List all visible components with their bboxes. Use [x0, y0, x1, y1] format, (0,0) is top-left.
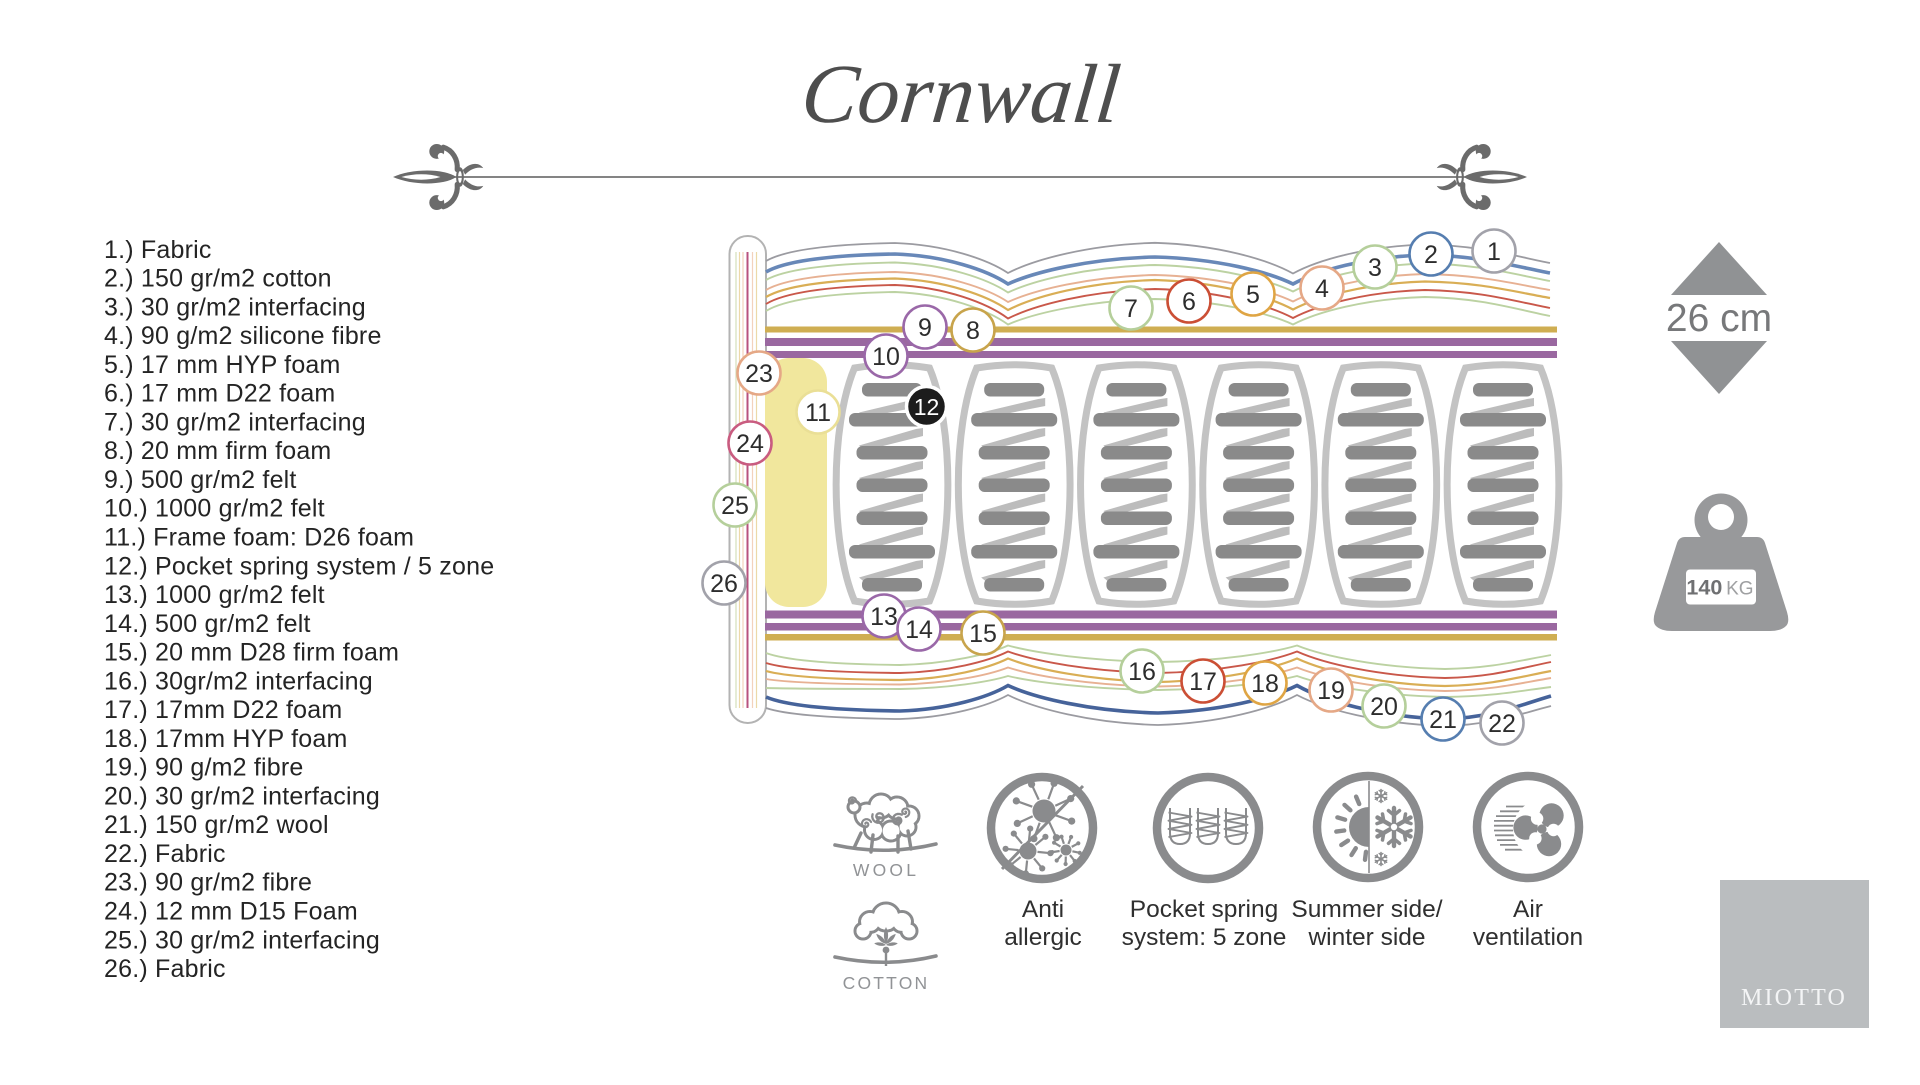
svg-text:7: 7 [1124, 295, 1138, 323]
svg-text:9: 9 [918, 314, 932, 342]
svg-text:1.) Fabric: 1.) Fabric [104, 236, 212, 264]
svg-text:20.) 30 gr/m2 interfacing: 20.) 30 gr/m2 interfacing [104, 782, 380, 810]
svg-text:Anti: Anti [1022, 896, 1064, 923]
svg-text:8.) 20 mm firm foam: 8.) 20 mm firm foam [104, 437, 331, 465]
svg-text:22.) Fabric: 22.) Fabric [104, 840, 226, 868]
svg-text:13: 13 [870, 603, 898, 631]
svg-text:24.) 12 mm D15 Foam: 24.) 12 mm D15 Foam [104, 898, 358, 926]
svg-text:3: 3 [1368, 254, 1382, 282]
svg-text:6: 6 [1182, 288, 1196, 316]
svg-text:22: 22 [1488, 710, 1516, 738]
svg-text:19: 19 [1317, 677, 1345, 705]
svg-text:5.) 17 mm HYP foam: 5.) 17 mm HYP foam [104, 351, 341, 379]
svg-text:17.) 17mm D22 foam: 17.) 17mm D22 foam [104, 696, 342, 724]
svg-text:18.) 17mm HYP foam: 18.) 17mm HYP foam [104, 725, 348, 753]
svg-text:COTTON: COTTON [843, 973, 930, 993]
svg-text:6.) 17 mm D22 foam: 6.) 17 mm D22 foam [104, 380, 335, 408]
svg-text:Pocket spring: Pocket spring [1130, 896, 1278, 923]
svg-text:140 KG: 140 KG [1686, 576, 1753, 600]
svg-text:Air: Air [1513, 896, 1543, 923]
svg-text:1: 1 [1487, 238, 1501, 266]
svg-text:system: 5 zone: system: 5 zone [1122, 924, 1287, 951]
svg-text:10.) 1000 gr/m2 felt: 10.) 1000 gr/m2 felt [104, 495, 325, 523]
svg-text:14.) 500 gr/m2 felt: 14.) 500 gr/m2 felt [104, 610, 311, 638]
svg-text:25: 25 [721, 492, 749, 520]
svg-text:25.) 30 gr/m2 interfacing: 25.) 30 gr/m2 interfacing [104, 926, 380, 954]
svg-text:Summer side/: Summer side/ [1291, 896, 1442, 923]
svg-text:12: 12 [914, 394, 940, 420]
svg-text:7.) 30 gr/m2 interfacing: 7.) 30 gr/m2 interfacing [104, 408, 366, 436]
svg-text:3.) 30 gr/m2 interfacing: 3.) 30 gr/m2 interfacing [104, 293, 366, 321]
svg-text:24: 24 [736, 430, 764, 458]
svg-text:23: 23 [745, 360, 773, 388]
svg-text:10: 10 [872, 343, 900, 371]
svg-text:21.) 150 gr/m2 wool: 21.) 150 gr/m2 wool [104, 811, 329, 839]
svg-text:26: 26 [710, 570, 738, 598]
svg-text:16.) 30gr/m2 interfacing: 16.) 30gr/m2 interfacing [104, 667, 373, 695]
svg-text:26 cm: 26 cm [1666, 297, 1772, 340]
svg-text:26.) Fabric: 26.) Fabric [104, 955, 226, 983]
svg-text:17: 17 [1189, 668, 1217, 696]
svg-text:18: 18 [1251, 670, 1279, 698]
svg-text:5: 5 [1246, 281, 1260, 309]
svg-text:9.) 500 gr/m2 felt: 9.) 500 gr/m2 felt [104, 466, 297, 494]
svg-text:19.) 90 g/m2 fibre: 19.) 90 g/m2 fibre [104, 754, 304, 782]
svg-text:20: 20 [1370, 693, 1398, 721]
svg-text:11.) Frame foam: D26 foam: 11.) Frame foam: D26 foam [104, 524, 414, 552]
svg-text:15: 15 [969, 620, 997, 648]
svg-text:Cornwall: Cornwall [797, 48, 1124, 141]
svg-text:4: 4 [1315, 275, 1329, 303]
svg-text:23.) 90 gr/m2 fibre: 23.) 90 gr/m2 fibre [104, 869, 312, 897]
svg-text:2: 2 [1424, 241, 1438, 269]
svg-text:allergic: allergic [1004, 924, 1082, 951]
svg-text:WOOL: WOOL [853, 860, 919, 880]
svg-text:4.) 90 g/m2 silicone fibre: 4.) 90 g/m2 silicone fibre [104, 322, 382, 350]
svg-text:winter side: winter side [1307, 924, 1425, 951]
svg-text:13.) 1000 gr/m2 felt: 13.) 1000 gr/m2 felt [104, 581, 325, 609]
svg-text:2.) 150 gr/m2 cotton: 2.) 150 gr/m2 cotton [104, 265, 332, 293]
svg-text:12.) Pocket spring system / 5: 12.) Pocket spring system / 5 zone [104, 552, 494, 580]
svg-text:16: 16 [1128, 658, 1156, 686]
svg-text:21: 21 [1429, 706, 1457, 734]
svg-text:14: 14 [905, 616, 933, 644]
svg-text:11: 11 [805, 399, 831, 427]
svg-text:MIOTTO: MIOTTO [1741, 985, 1847, 1011]
svg-text:ventilation: ventilation [1473, 924, 1583, 951]
svg-text:15.) 20 mm D28 firm foam: 15.) 20 mm D28 firm foam [104, 639, 399, 667]
svg-text:8: 8 [966, 317, 980, 345]
